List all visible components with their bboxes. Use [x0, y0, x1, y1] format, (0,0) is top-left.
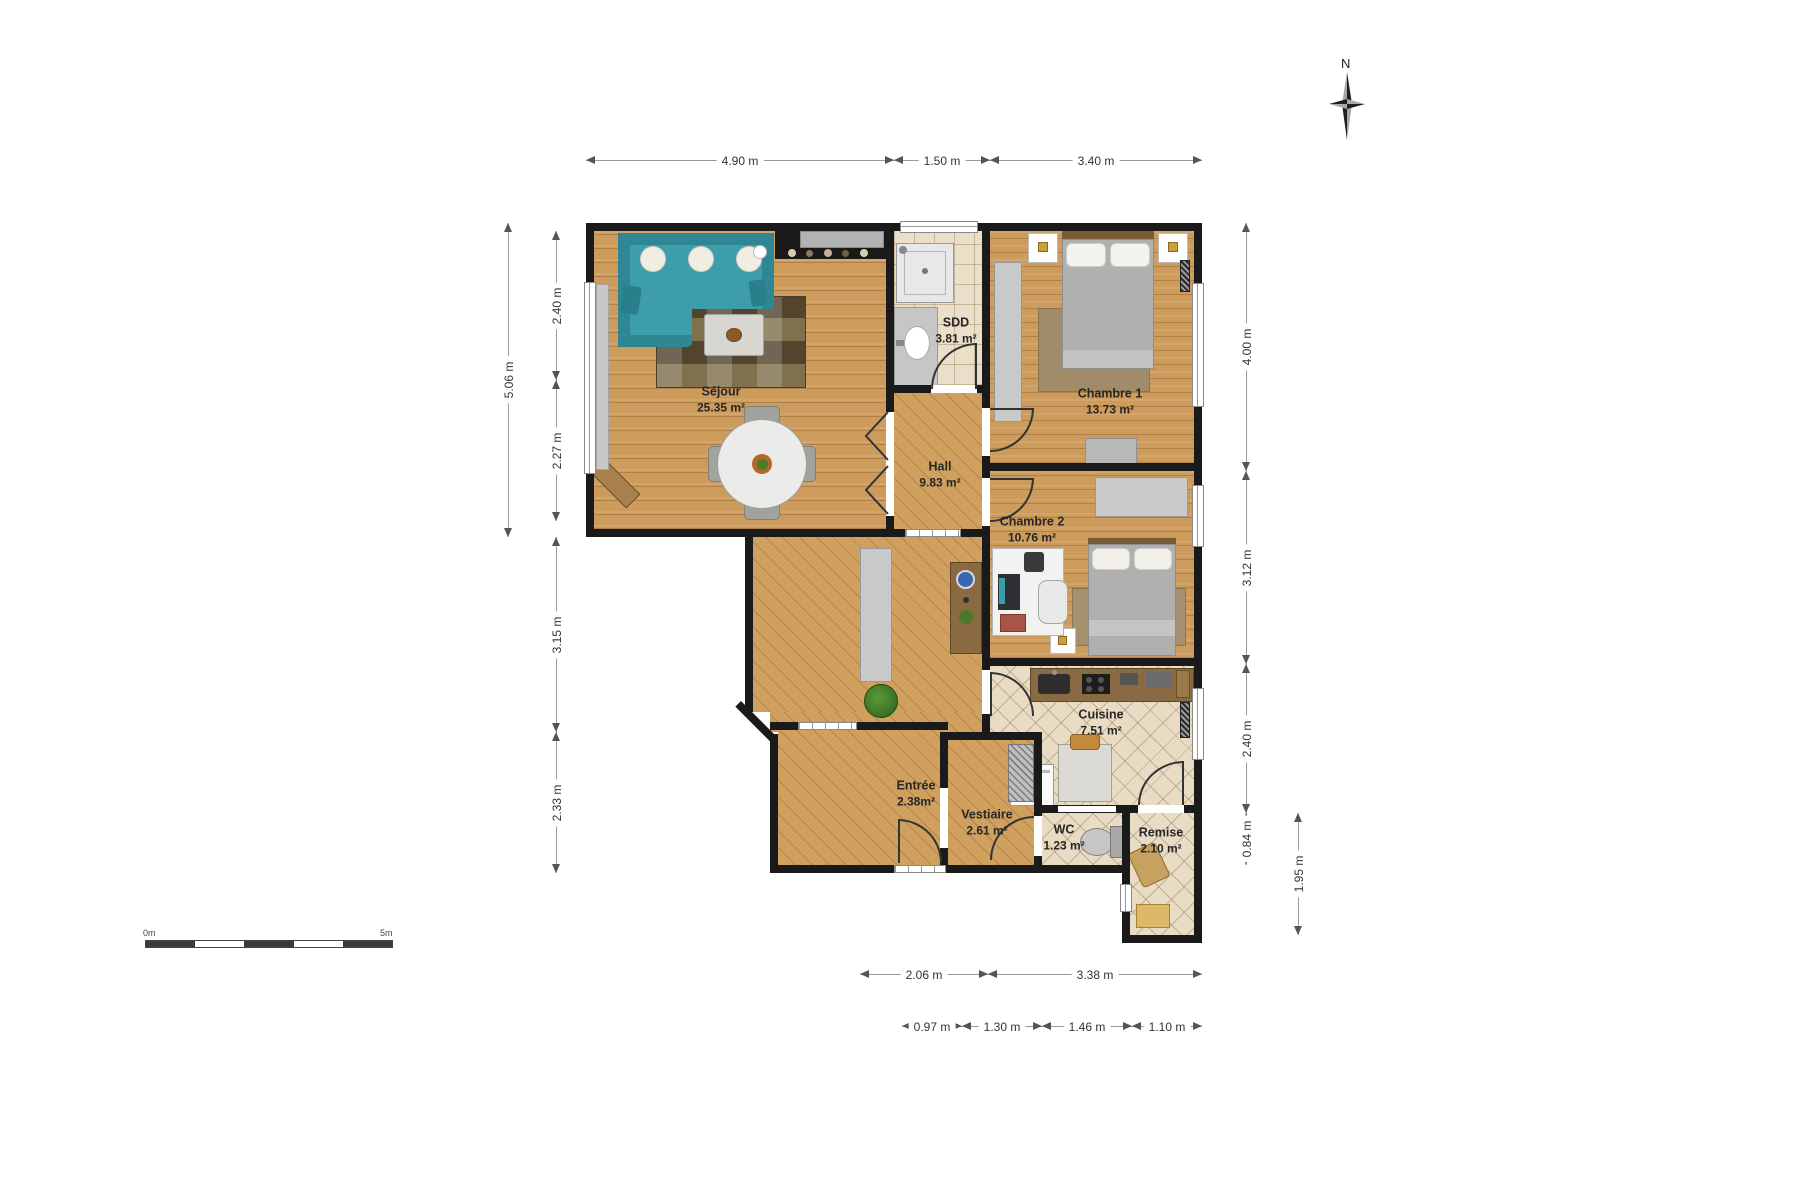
- dimension-bottom-3: 0.97 m: [902, 1026, 962, 1027]
- room-area: 9.83 m²: [919, 476, 960, 490]
- dresser: [1085, 438, 1137, 464]
- sofa-back: [618, 233, 774, 245]
- room-label-vestiaire: Vestiaire 2.61 m²: [961, 807, 1012, 840]
- dimension-bottom-6: 1.10 m: [1132, 1026, 1202, 1027]
- wall: [770, 722, 948, 730]
- bed1-pillow: [1066, 243, 1106, 267]
- room-label-remise: Remise 2.10 m²: [1139, 825, 1183, 858]
- room-label-hall: Hall 9.83 m²: [919, 459, 960, 492]
- sofa-cushion: [748, 279, 767, 307]
- room-name: Entrée: [897, 779, 936, 793]
- decor-plate-blue: [956, 570, 975, 589]
- serving-hatch: [1058, 806, 1116, 812]
- bed1-headboard: [1062, 231, 1154, 239]
- decor-plant-small: [959, 610, 973, 624]
- dimension-left-4: 2.33 m: [556, 732, 557, 873]
- decor-vase: [806, 250, 813, 257]
- room-label-sdd: SDD 3.81 m²: [935, 315, 976, 348]
- dimension-left-3: 3.15 m: [556, 537, 557, 732]
- dimension-bottom-2: 3.38 m: [988, 974, 1202, 975]
- room-label-chambre1: Chambre 1 13.73 m²: [1078, 386, 1143, 419]
- room-label-entree: Entrée 2.38m²: [897, 778, 936, 811]
- dimension-right-4: 0.84 m: [1246, 813, 1247, 865]
- kitchen-faucet: [1052, 670, 1057, 675]
- room-label-wc: WC 1.23 m²: [1043, 822, 1084, 855]
- wall: [940, 732, 1042, 740]
- lamp: [1038, 242, 1048, 252]
- door-opening-chambre1: [982, 408, 990, 456]
- scale-bar-start: 0m: [143, 928, 156, 938]
- room-name: Vestiaire: [961, 808, 1012, 822]
- dimension-top-3: 3.40 m: [990, 160, 1202, 161]
- wardrobe-chambre2: [1095, 477, 1188, 517]
- room-area: 25.35 m²: [697, 401, 745, 415]
- room-area: 2.38m²: [897, 795, 935, 809]
- window-sdd: [900, 221, 978, 233]
- radiator-icon: [1180, 260, 1190, 292]
- kitchen-table: [1058, 744, 1112, 802]
- sofa-chaise-end: [618, 335, 692, 347]
- bed2-blanket-fold: [1089, 620, 1175, 636]
- door-opening-remise: [1138, 805, 1184, 813]
- desk-pad: [1000, 614, 1026, 632]
- kitchen-sink: [1038, 674, 1070, 694]
- door-leaf: [990, 478, 1034, 480]
- coffee-machine: [1024, 552, 1044, 572]
- room-area: 2.61 m²: [966, 824, 1007, 838]
- dimension-top-2: 1.50 m: [894, 160, 990, 161]
- room-name: WC: [1054, 823, 1075, 837]
- entry-door-sill: [894, 865, 946, 873]
- dimension-right-2: 3.12 m: [1246, 471, 1247, 664]
- door-leaf: [990, 672, 992, 716]
- opening-corridor-entree: [798, 722, 857, 730]
- tv-shelf: [800, 231, 884, 248]
- shower-head: [899, 246, 907, 254]
- dimension-top-1: 4.90 m: [586, 160, 894, 161]
- room-name: Remise: [1139, 826, 1183, 840]
- office-chair: [1038, 580, 1068, 624]
- burner: [1086, 686, 1092, 692]
- storage-bench: [1136, 904, 1170, 928]
- shower-drain: [922, 268, 928, 274]
- opening-entree-vestiaire: [940, 788, 948, 848]
- room-area: 10.76 m²: [1008, 531, 1056, 545]
- door-opening-cuisine: [982, 670, 990, 714]
- room-area: 13.73 m²: [1086, 403, 1134, 417]
- counter-item: [1120, 673, 1138, 685]
- door-leaf: [898, 819, 900, 863]
- hall-wardrobe: [860, 548, 892, 682]
- wall: [1122, 805, 1130, 935]
- dimension-left-2: 2.27 m: [556, 380, 557, 521]
- wall: [770, 734, 778, 873]
- window-remise: [1120, 884, 1132, 912]
- wall: [586, 223, 1202, 231]
- counter-item: [1146, 672, 1172, 688]
- washbasin: [904, 326, 930, 360]
- room-name: Chambre 2: [1000, 515, 1065, 529]
- wall: [1122, 935, 1202, 943]
- room-label-chambre2: Chambre 2 10.76 m²: [1000, 514, 1065, 547]
- window-cuisine: [1192, 688, 1204, 760]
- bed1-pillow: [1110, 243, 1150, 267]
- coffee-table-bowl: [726, 328, 742, 342]
- door-opening-wc: [1034, 816, 1042, 856]
- sofa-pillow: [640, 246, 666, 272]
- window-chambre1: [1192, 283, 1204, 407]
- scale-bar: [145, 940, 393, 948]
- scale-bar-end: 5m: [380, 928, 393, 938]
- bed1-blanket-fold: [1063, 350, 1153, 368]
- dimension-right-3: 2.40 m: [1246, 664, 1247, 813]
- bed2-pillow: [1134, 548, 1172, 570]
- room-name: Séjour: [702, 385, 741, 399]
- dimension-bottom-4: 1.30 m: [962, 1026, 1042, 1027]
- dimension-right-1: 4.00 m: [1246, 223, 1247, 471]
- wall: [745, 529, 753, 712]
- french-doors-icon: [862, 410, 890, 518]
- window-chambre2: [1192, 485, 1204, 547]
- dimension-right-outer: 1.95 m: [1298, 813, 1299, 935]
- bed2-pillow: [1092, 548, 1130, 570]
- door-leaf: [990, 408, 1034, 410]
- decor-plate: [753, 245, 767, 259]
- door-leaf: [1182, 761, 1184, 805]
- room-name: SDD: [943, 316, 969, 330]
- room-name: Cuisine: [1078, 708, 1123, 722]
- north-compass-icon: [1317, 70, 1377, 146]
- door-opening-chambre2: [982, 478, 990, 526]
- burner: [1086, 677, 1092, 683]
- wardrobe-chambre1: [994, 262, 1022, 422]
- table-centerpiece-plant: [757, 459, 768, 470]
- room-label-sejour: Séjour 25.35 m²: [697, 384, 745, 417]
- room-area: 2.10 m²: [1140, 842, 1181, 856]
- sofa-cushion: [620, 285, 642, 315]
- wall: [982, 658, 1202, 666]
- window-blind: [596, 284, 609, 470]
- potted-plant: [864, 684, 898, 718]
- toilet-bowl: [1080, 828, 1114, 856]
- faucet: [896, 340, 904, 346]
- dimension-left-outer: 5.06 m: [508, 223, 509, 537]
- dimension-left-1: 2.40 m: [556, 231, 557, 380]
- sofa-pillow: [688, 246, 714, 272]
- window-sejour: [584, 282, 596, 474]
- lamp: [1058, 636, 1067, 645]
- room-name: Chambre 1: [1078, 387, 1143, 401]
- radiator-icon: [1180, 702, 1190, 738]
- room-area: 3.81 m²: [935, 332, 976, 346]
- floor-plan-page: Séjour 25.35 m² SDD 3.81 m² Chambre 1 13…: [0, 0, 1806, 1200]
- burner: [1098, 686, 1104, 692]
- compass-north-label: N: [1341, 56, 1350, 71]
- cutting-board: [1176, 670, 1190, 698]
- decor-knob: [963, 597, 969, 603]
- decor-vase: [842, 250, 849, 257]
- room-name: Hall: [929, 460, 952, 474]
- dimension-bottom-1: 2.06 m: [860, 974, 988, 975]
- decor-vase: [824, 249, 832, 257]
- room-area: 1.23 m²: [1043, 839, 1084, 853]
- door-leaf: [975, 343, 977, 389]
- burner: [1098, 677, 1104, 683]
- room-label-cuisine: Cuisine 7.51 m²: [1078, 707, 1123, 740]
- dimension-bottom-5: 1.46 m: [1042, 1026, 1132, 1027]
- room-area: 7.51 m²: [1080, 724, 1121, 738]
- wall: [982, 463, 1202, 471]
- decor-vase: [860, 249, 868, 257]
- decor-vase: [788, 249, 796, 257]
- vestiaire-closet: [1008, 744, 1034, 802]
- lamp: [1168, 242, 1178, 252]
- wall: [770, 865, 1130, 873]
- opening-hall-corridor: [905, 529, 961, 537]
- monitor-screen: [999, 578, 1005, 604]
